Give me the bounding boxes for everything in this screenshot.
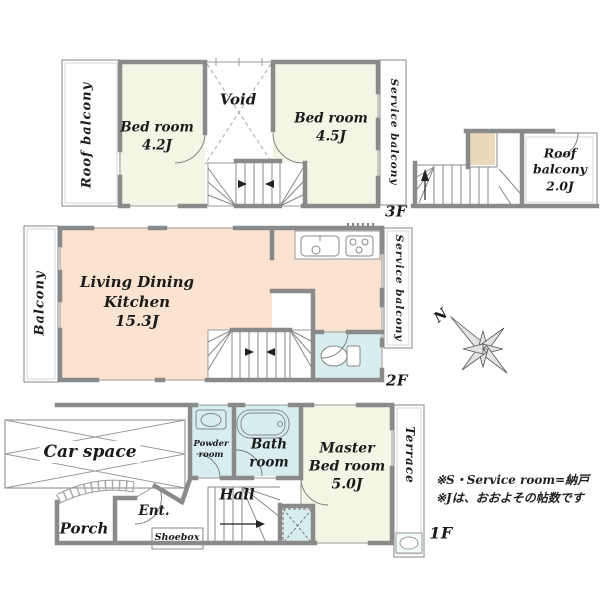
stairs-3f <box>208 162 303 206</box>
label-floor-1f: 1F <box>429 524 453 545</box>
label-master-bedroom: Master Bed room 5.0J <box>309 440 385 495</box>
label-car-space: Car space <box>39 441 140 463</box>
label-service-balcony-3f: Service balcony <box>386 79 400 186</box>
label-bedroom-a: Bed room 4.2J <box>120 119 194 154</box>
label-bedroom-b: Bed room 4.5J <box>294 110 368 145</box>
label-powder-room: Powder room <box>194 439 229 461</box>
label-roof-balcony-upper: Roof balcony 2.0J <box>533 146 587 195</box>
floor-plan-canvas: Roof balcony Bed room 4.2J Void Bed room… <box>0 0 600 600</box>
label-roof-balcony-3f: Roof balcony <box>80 82 97 188</box>
note-jou: ※Jは、おおよその帖数です <box>436 489 584 506</box>
label-floor-2f: 2F <box>386 371 408 391</box>
label-shoebox: Shoebox <box>155 532 200 544</box>
toilet-icon <box>321 346 360 366</box>
label-entrance: Ent. <box>138 503 169 521</box>
label-service-balcony-2f: Service balcony <box>391 235 405 342</box>
label-balcony-2f: Balcony <box>33 271 50 336</box>
stairwell-2f <box>208 330 313 378</box>
label-hall: Hall <box>219 485 254 505</box>
stairs-3f-arrow-right <box>238 180 247 188</box>
hall-2f <box>272 293 313 332</box>
label-void: Void <box>220 90 256 110</box>
stairs-1f-arrow <box>256 520 265 528</box>
label-floor-3f: 3F <box>385 202 407 222</box>
note-service-room: ※S・Service room=納戸 <box>436 471 589 488</box>
label-porch: Porch <box>60 519 109 539</box>
label-terrace: Terrace <box>401 426 417 484</box>
terrace-oval-icon <box>400 537 418 549</box>
void-cross <box>207 64 271 161</box>
stair-landing <box>470 133 495 165</box>
compass-icon <box>451 317 508 374</box>
label-ldk: Living Dining Kitchen 15.3J <box>80 273 194 332</box>
stairs-3f-arrow-left <box>265 180 274 188</box>
label-bath-room: Bath room <box>249 436 288 471</box>
